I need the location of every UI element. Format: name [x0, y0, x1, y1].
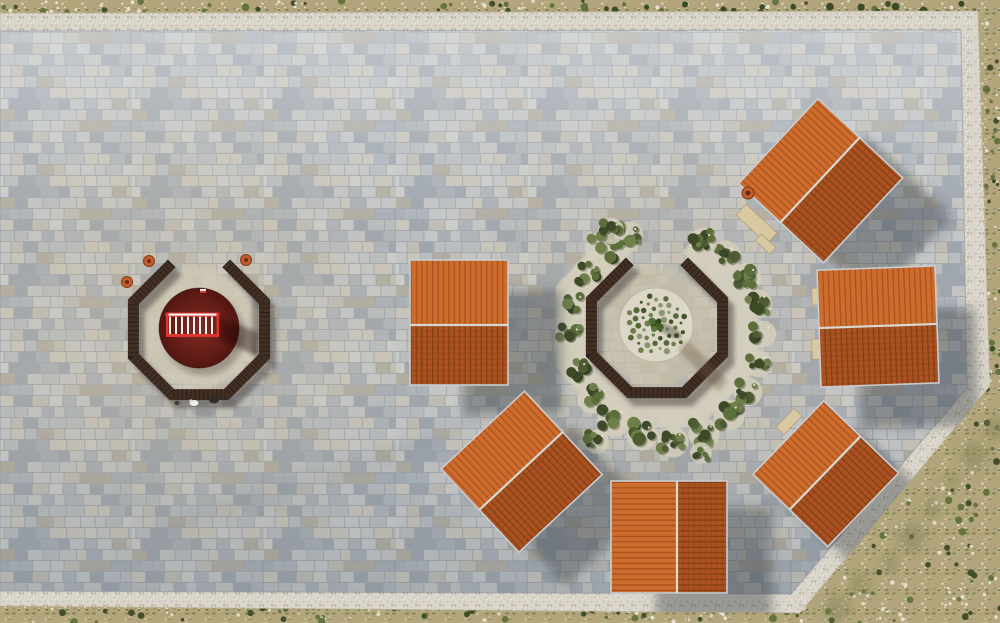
garden-plant-dot: [642, 316, 645, 319]
garden-plant-dot: [658, 303, 663, 308]
visitor-dog: [209, 397, 219, 404]
garden-plant-dot: [644, 336, 649, 341]
garden-plant-dot: [663, 296, 668, 301]
garden-plant-dot: [649, 349, 653, 353]
garden-plant-dot: [667, 311, 670, 314]
roof-light-slope: [611, 481, 677, 593]
garden-plant-dot: [641, 308, 646, 313]
garden-plant-dot: [633, 307, 639, 313]
roof-dark-slope: [819, 324, 939, 387]
garden-plant-dot: [637, 342, 640, 345]
garden-plant-dot: [654, 298, 658, 302]
garden-plant-dot: [659, 347, 662, 350]
shrub-cluster: [690, 442, 712, 464]
garden-plant-dot: [659, 310, 665, 316]
roof-light-slope: [817, 266, 937, 328]
garden-plant-dot: [664, 348, 670, 354]
garden-plant-dot: [652, 307, 656, 311]
garden-plant-dot: [652, 341, 657, 346]
garden-plant-dot: [633, 316, 639, 322]
garden-plant-dot: [640, 301, 643, 304]
garden-plant-dot: [644, 342, 650, 348]
stage: [0, 0, 1000, 623]
roof-light-slope: [410, 260, 508, 325]
garden-plant-dot: [627, 320, 632, 325]
garden-plant-dot: [642, 328, 645, 331]
pavilion-2: [817, 266, 939, 387]
garden-plant-dot: [649, 313, 653, 317]
garden-plant-dot: [647, 302, 650, 305]
garden-plant-dot: [638, 347, 644, 353]
roof-dark-slope: [410, 325, 508, 385]
pavilion-6: [410, 260, 508, 385]
shrub-cluster: [560, 290, 589, 319]
garden-plant-dot: [669, 319, 674, 324]
shrub-cluster: [744, 290, 773, 319]
pavilion-4: [611, 481, 727, 593]
garden-plant-dot: [664, 340, 670, 346]
garden-plant-dot: [666, 303, 671, 308]
garden-plant-dot: [647, 294, 652, 299]
garden-plant-dot: [661, 317, 667, 323]
shrub-cluster: [748, 321, 776, 347]
garden-plant-dot: [627, 310, 632, 315]
garden-plant-dot: [658, 336, 663, 341]
garden-plant-dot: [673, 313, 679, 319]
circle-top-marker: [200, 289, 206, 291]
garden-plant-dot: [635, 323, 641, 329]
garden-plant-dot: [680, 322, 683, 325]
shrub-cluster: [733, 263, 762, 292]
aerial-photo-stone-plaza: [0, 0, 1000, 623]
shrub-cluster: [734, 378, 763, 407]
garden-plant-dot: [676, 308, 679, 311]
garden-plant-dot: [630, 328, 636, 334]
garden-plant-dot: [652, 333, 655, 336]
garden-plant-dot: [628, 335, 634, 341]
garden-plant-dot: [637, 334, 643, 340]
roof-dark-slope: [677, 481, 727, 593]
garden-plant-dot: [681, 314, 687, 320]
garden-plant-dot: [671, 342, 676, 347]
garden-plant-dot: [681, 330, 685, 334]
garden-plant-dot: [679, 340, 683, 344]
